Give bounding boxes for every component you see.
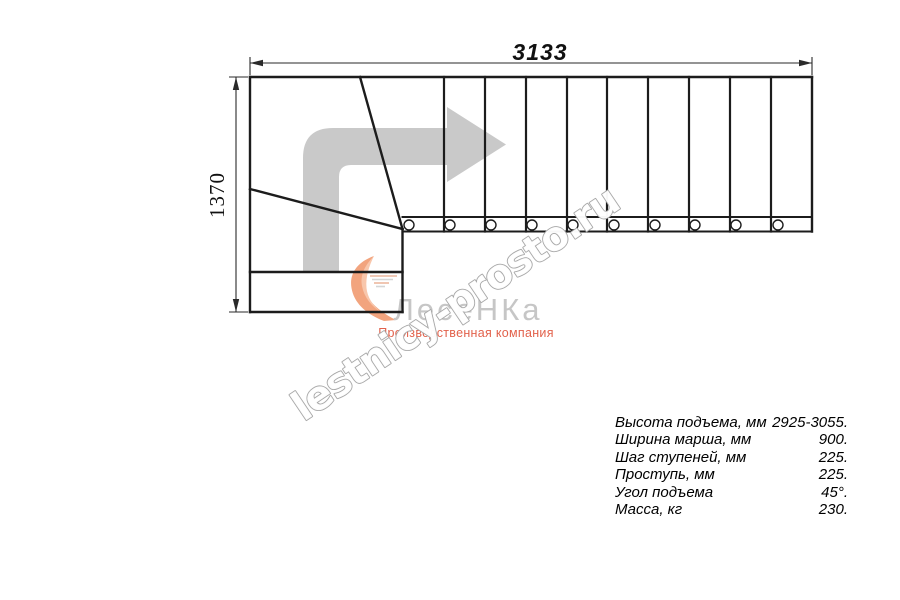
stair-drawing-page: ЛесеНКа Производственная компания xyxy=(0,0,900,600)
spec-value: 2925-3055. xyxy=(772,414,848,431)
spec-row-width: Ширина марша, мм 900. xyxy=(615,431,848,448)
spec-label: Высота подъема, мм xyxy=(615,414,767,431)
spec-row-mass: Масса, кг 230. xyxy=(615,501,848,518)
spec-label: Проступь, мм xyxy=(615,466,715,483)
spec-value: 45°. xyxy=(821,484,848,501)
spec-value: 230. xyxy=(819,501,848,518)
spec-value: 225. xyxy=(819,466,848,483)
dim-arrow-top xyxy=(233,77,239,90)
dim-arrow-right xyxy=(799,60,812,66)
spec-table: Высота подъема, мм 2925-3055. Ширина мар… xyxy=(615,414,848,518)
spec-row-step: Шаг ступеней, мм 225. xyxy=(615,449,848,466)
spec-row-angle: Угол подъема 45°. xyxy=(615,484,848,501)
spec-row-tread: Проступь, мм 225. xyxy=(615,466,848,483)
spec-label: Ширина марша, мм xyxy=(615,431,751,448)
spec-value: 900. xyxy=(819,431,848,448)
width-dimension: 3133 xyxy=(250,39,812,75)
dim-arrow-bottom xyxy=(233,299,239,312)
dim-arrow-left xyxy=(250,60,263,66)
spec-value: 225. xyxy=(819,449,848,466)
spec-label: Угол подъема xyxy=(615,484,713,501)
spec-row-height: Высота подъема, мм 2925-3055. xyxy=(615,414,848,431)
height-dimension: 1370 xyxy=(205,77,248,312)
spec-label: Масса, кг xyxy=(615,501,682,518)
spec-label: Шаг ступеней, мм xyxy=(615,449,746,466)
direction-arrow-icon xyxy=(303,107,506,273)
height-dimension-label: 1370 xyxy=(205,172,229,218)
width-dimension-label: 3133 xyxy=(512,39,567,65)
